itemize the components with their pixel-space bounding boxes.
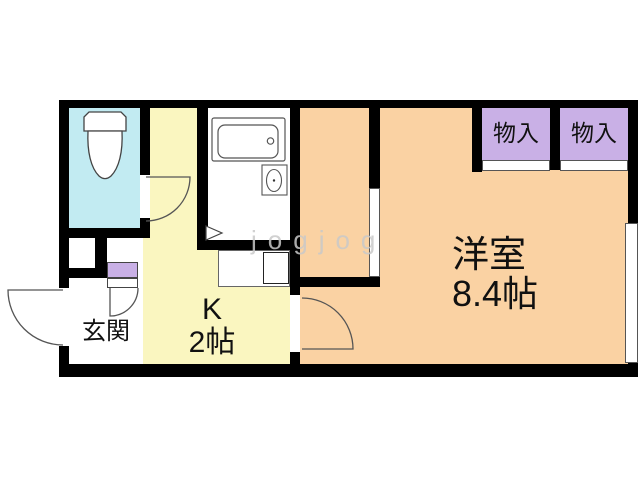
toilet-icon bbox=[84, 112, 126, 179]
toilet-door-arc bbox=[146, 177, 190, 221]
closet-right-label: 物入 bbox=[560, 122, 628, 145]
kitchen-size: 2帖 bbox=[166, 326, 258, 359]
closet-left-label: 物入 bbox=[482, 122, 550, 145]
entrance-label: 玄関 bbox=[70, 320, 142, 344]
kitchen-label: K 2帖 bbox=[166, 293, 258, 359]
cabinet-door-arc bbox=[110, 288, 138, 316]
kitchen-name: K bbox=[166, 293, 258, 326]
folding-door-icon bbox=[206, 226, 222, 240]
washbasin-icon bbox=[262, 165, 287, 195]
entrance-door-arc bbox=[8, 290, 63, 345]
western-room-size: 8.4帖 bbox=[452, 275, 538, 313]
kitchen-room-door-arc bbox=[302, 298, 353, 349]
western-room-name: 洋室 bbox=[452, 235, 538, 275]
watermark-text: jogjog bbox=[251, 225, 386, 256]
western-room-label: 洋室 8.4帖 bbox=[452, 235, 538, 313]
bathtub-icon bbox=[212, 118, 285, 161]
floor-plan: 物入 物入 洋室 8.4帖 K 2帖 玄関 jogjog bbox=[0, 0, 640, 480]
